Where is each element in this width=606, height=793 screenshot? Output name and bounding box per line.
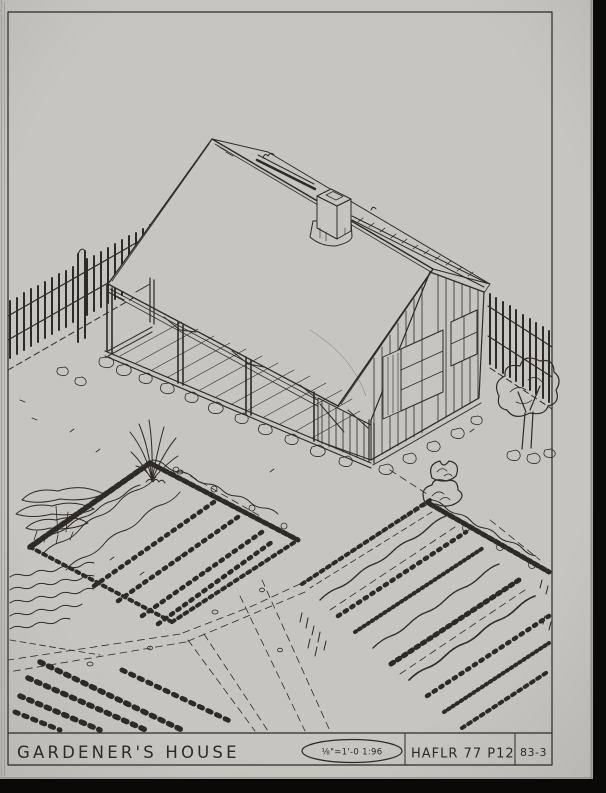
gardeners-house-drawing: GARDENER'S HOUSE ⅛"=1'-0 1:96 HAFLR 77 P…	[0, 0, 606, 793]
scanned-drawing-page: GARDENER'S HOUSE ⅛"=1'-0 1:96 HAFLR 77 P…	[0, 0, 606, 793]
scale-stamp-text: ⅛"=1'-0 1:96	[322, 748, 383, 758]
reference-number: HAFLR 77 P12	[411, 747, 515, 762]
drawing-title: GARDENER'S HOUSE	[17, 743, 240, 762]
sheet-number: 83-3	[520, 746, 547, 759]
